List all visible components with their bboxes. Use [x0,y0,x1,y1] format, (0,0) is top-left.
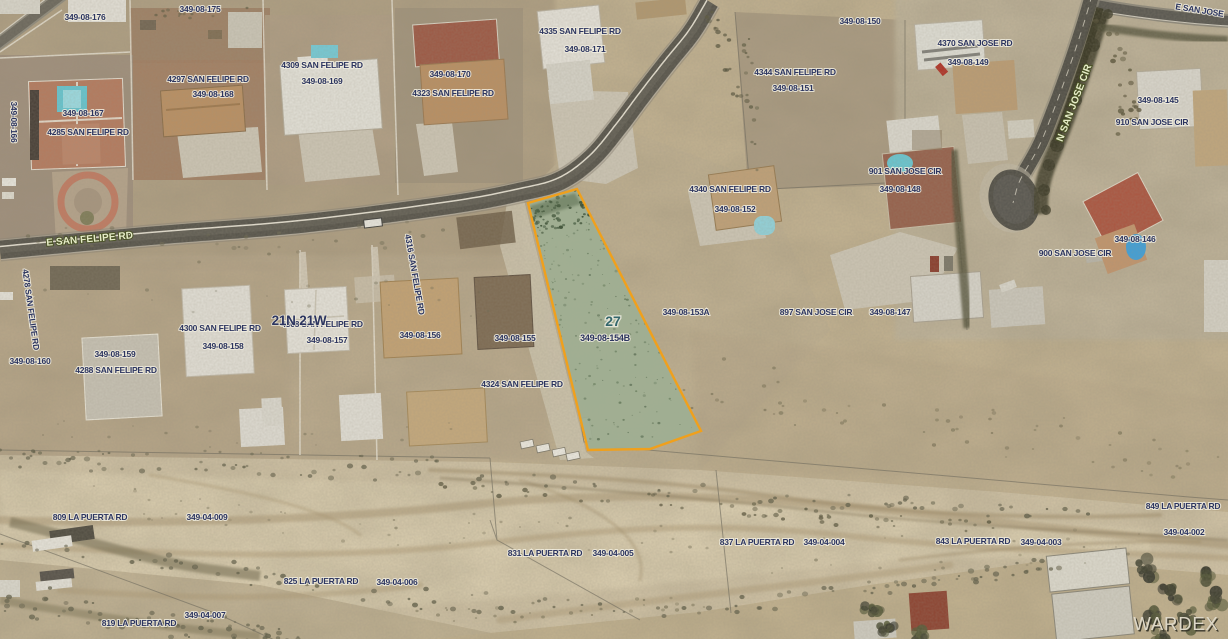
svg-text:349-08-154B: 349-08-154B [580,333,631,343]
svg-text:809 LA PUERTA RD: 809 LA PUERTA RD [53,512,128,522]
svg-text:349-08-175: 349-08-175 [180,4,222,14]
svg-text:349-08-158: 349-08-158 [203,341,245,351]
svg-text:849 LA PUERTA RD: 849 LA PUERTA RD [1146,501,1221,511]
svg-text:900 SAN JOSE CIR: 900 SAN JOSE CIR [1039,248,1112,258]
svg-text:4285 SAN FELIPE RD: 4285 SAN FELIPE RD [47,127,129,137]
svg-text:837 LA PUERTA RD: 837 LA PUERTA RD [720,537,795,547]
svg-text:349-08-149: 349-08-149 [948,57,990,67]
svg-text:349-08-150: 349-08-150 [840,16,882,26]
svg-text:349-08-171: 349-08-171 [565,44,607,54]
svg-text:349-04-004: 349-04-004 [804,537,846,547]
svg-text:4344 SAN FELIPE RD: 4344 SAN FELIPE RD [754,67,836,77]
svg-text:349-08-146: 349-08-146 [1115,234,1157,244]
svg-text:4323 SAN FELIPE RD: 4323 SAN FELIPE RD [412,88,494,98]
svg-text:349-04-006: 349-04-006 [377,577,419,587]
svg-text:4297 SAN FELIPE RD: 4297 SAN FELIPE RD [167,74,249,84]
svg-text:349-08-169: 349-08-169 [302,76,344,86]
svg-text:4324 SAN FELIPE RD: 4324 SAN FELIPE RD [481,379,563,389]
svg-text:4309 SAN FELIPE RD: 4309 SAN FELIPE RD [281,60,363,70]
svg-text:349-08-152: 349-08-152 [715,204,757,214]
svg-text:4340 SAN FELIPE RD: 4340 SAN FELIPE RD [689,184,771,194]
svg-text:349-04-003: 349-04-003 [1021,537,1063,547]
svg-text:349-08-155: 349-08-155 [495,333,537,343]
svg-text:901 SAN JOSE CIR: 901 SAN JOSE CIR [869,166,942,176]
svg-text:WARDEX: WARDEX [1133,613,1218,634]
svg-text:21N 21W: 21N 21W [272,313,327,328]
svg-text:843 LA PUERTA RD: 843 LA PUERTA RD [936,536,1011,546]
svg-text:897 SAN JOSE CIR: 897 SAN JOSE CIR [780,307,853,317]
svg-text:349-04-009: 349-04-009 [187,512,229,522]
svg-text:831 LA PUERTA RD: 831 LA PUERTA RD [508,548,583,558]
svg-text:349-08-166: 349-08-166 [9,102,19,144]
svg-text:349-04-002: 349-04-002 [1164,527,1206,537]
svg-text:4370 SAN JOSE RD: 4370 SAN JOSE RD [938,38,1013,48]
svg-text:349-08-153A: 349-08-153A [663,307,710,317]
svg-text:349-08-176: 349-08-176 [65,12,107,22]
svg-text:349-08-148: 349-08-148 [880,184,922,194]
svg-text:910 SAN JOSE CIR: 910 SAN JOSE CIR [1116,117,1189,127]
svg-text:349-08-168: 349-08-168 [193,89,235,99]
svg-text:349-08-147: 349-08-147 [870,307,912,317]
svg-text:4300 SAN FELIPE RD: 4300 SAN FELIPE RD [179,323,261,333]
svg-text:819 LA PUERTA RD: 819 LA PUERTA RD [102,618,177,628]
svg-text:349-08-151: 349-08-151 [773,83,815,93]
svg-text:349-08-156: 349-08-156 [400,330,442,340]
svg-text:349-04-007: 349-04-007 [185,610,227,620]
svg-text:349-08-167: 349-08-167 [63,108,105,118]
svg-text:349-08-159: 349-08-159 [95,349,137,359]
svg-text:349-08-157: 349-08-157 [307,335,349,345]
svg-text:349-08-160: 349-08-160 [10,356,52,366]
svg-text:349-08-170: 349-08-170 [430,69,472,79]
svg-text:349-04-005: 349-04-005 [593,548,635,558]
svg-text:825 LA PUERTA RD: 825 LA PUERTA RD [284,576,359,586]
svg-text:27: 27 [605,313,621,329]
svg-text:349-08-145: 349-08-145 [1138,95,1180,105]
svg-text:4335 SAN FELIPE RD: 4335 SAN FELIPE RD [539,26,621,36]
svg-text:4288 SAN FELIPE RD: 4288 SAN FELIPE RD [75,365,157,375]
